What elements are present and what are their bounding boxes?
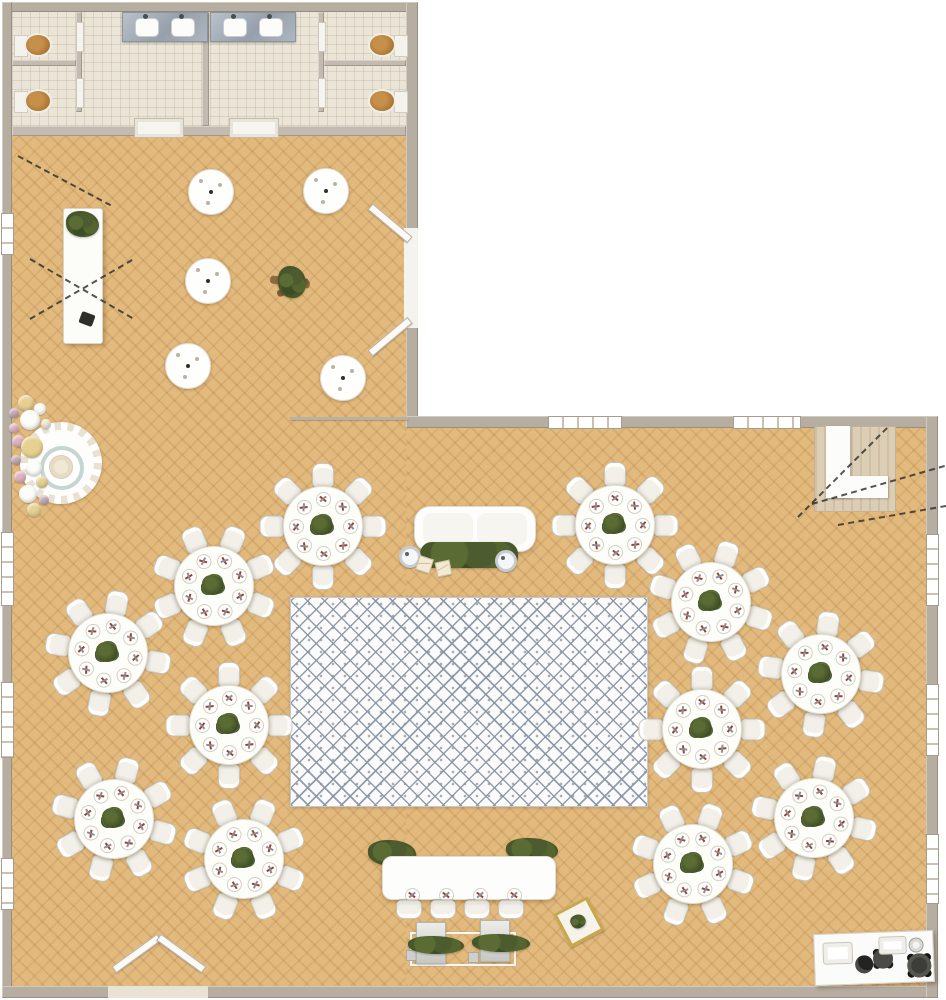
toilet[interactable] [26,91,50,111]
table-decor [203,290,207,294]
table-decor [199,179,203,183]
chair [166,714,191,736]
restroom-door[interactable] [229,118,279,138]
balloon [20,410,40,430]
window[interactable] [1,532,14,606]
place-setting [608,491,623,506]
balloon [14,471,26,483]
wall-top [2,2,418,12]
table-decor [215,272,219,276]
window[interactable] [926,834,939,904]
chair [801,711,826,739]
balloon [36,476,48,488]
chair [86,689,112,717]
place-setting [249,718,264,733]
chair [464,900,490,919]
potted-tree[interactable] [264,258,318,308]
table-decor [186,364,190,368]
pedestal-greenery [408,936,464,954]
chair [430,900,456,919]
chair [498,900,524,919]
chair [312,565,334,590]
toilet-tank [394,35,408,57]
table-decor [338,387,342,391]
dining-table[interactable] [627,798,757,928]
place-setting [695,749,710,764]
cocktail-table[interactable] [188,169,234,215]
pedestal-greenery [472,934,530,952]
faucet-icon [231,14,236,19]
wall-stall-left-mid [12,60,76,66]
faucet-icon [143,14,148,19]
floor-plan-canvas [0,0,946,1000]
window[interactable] [1,858,14,910]
faucet-icon [179,14,184,19]
sign-greenery [568,912,588,931]
chair [396,900,422,919]
chair [691,666,713,691]
grinder-icon [908,937,924,953]
floral-centerpiece [699,591,721,611]
balloon [9,423,19,433]
window[interactable] [1,682,14,758]
table-decor [195,357,199,361]
chair [604,564,626,589]
wall-stall-right-mid [324,60,406,66]
restroom-door[interactable] [134,118,184,138]
speaker-icon [907,953,932,978]
floral-centerpiece [603,514,625,534]
table-decor [206,279,210,283]
place-setting [668,722,683,737]
balloon [11,455,21,465]
place-setting [195,718,210,733]
vanity-counter[interactable] [210,12,296,42]
table-decor [183,375,187,379]
bar-decor-object [78,311,95,327]
cocktail-table[interactable] [185,258,231,304]
sink [259,18,283,37]
equipment-tray [822,942,853,965]
vinyl-disc-icon [855,955,874,974]
vanity-counter[interactable] [122,12,208,42]
table-decor [341,376,345,380]
chair [654,514,679,536]
place-setting [608,545,623,560]
chair [312,463,334,488]
chair [218,764,240,789]
dining-table[interactable] [42,587,172,717]
dining-table[interactable] [178,793,308,923]
card-box [435,560,453,578]
sink [171,18,195,37]
chair [604,462,626,487]
dining-table[interactable] [163,659,293,789]
table-decor [314,178,318,182]
sofa-cushion [423,513,473,545]
table-clamp [468,952,479,963]
floral-centerpiece [102,808,124,828]
dining-table[interactable] [748,752,878,882]
wall-left [2,2,12,998]
chair [639,718,664,740]
faucet-icon [267,14,272,19]
buffet-bar-table[interactable] [63,208,103,344]
toilet[interactable] [370,35,394,55]
place-setting [289,519,304,534]
floral-centerpiece [802,807,824,827]
table-decor [321,200,325,204]
table-decor [206,201,210,205]
balloon [21,436,43,458]
floral-centerpiece [96,642,118,662]
place-setting [343,519,358,534]
window[interactable] [548,416,622,429]
place-setting [316,546,331,561]
wall-wing-right [406,2,418,428]
table-decor [176,353,180,357]
place-setting [635,518,650,533]
stall-door[interactable] [76,22,84,52]
table-decor [196,268,200,272]
floral-centerpiece [232,848,254,868]
dining-table[interactable] [636,663,766,793]
floral-centerpiece [681,853,703,873]
dining-table[interactable] [48,753,178,883]
window[interactable] [733,416,801,429]
chair [218,662,240,687]
double-door-frame [404,228,418,328]
balloon [27,503,41,517]
balloon [41,419,51,429]
window[interactable] [926,684,939,756]
sofa-cushion [477,513,527,545]
greenery-arrangement [66,211,99,237]
stall-door[interactable] [318,22,326,52]
table-decor [350,369,354,373]
restroom-floor [12,12,406,126]
dj-station[interactable] [813,930,935,986]
place-setting [222,691,237,706]
toilet-tank [394,91,408,113]
table-decor [209,190,213,194]
sink [223,18,247,37]
place-setting [316,492,331,507]
table-decor [218,183,222,187]
entrance-threshold [108,986,208,998]
dance-floor[interactable] [290,597,648,807]
drape-rod [290,417,408,420]
wall-restroom-bottom [12,126,406,136]
floral-centerpiece [217,714,239,734]
chair [552,514,577,536]
chair [741,718,766,740]
floral-centerpiece [690,718,712,738]
chair [268,714,293,736]
balloon [39,495,49,505]
equipment-tray [878,936,907,955]
floral-centerpiece [202,575,224,595]
place-setting [722,722,737,737]
stall-door[interactable] [318,78,326,108]
place-setting [581,518,596,533]
cocktail-table[interactable] [303,168,349,214]
place-setting [695,695,710,710]
floral-centerpiece [809,663,831,683]
balloon [9,408,19,418]
window[interactable] [1,213,14,255]
table-decor [331,365,335,369]
balloon [26,460,42,476]
cake [49,455,73,479]
balloon [18,395,34,411]
balloon [19,485,37,503]
chair [691,768,713,793]
floral-centerpiece [311,515,333,535]
chair [362,515,387,537]
table-decor [324,189,328,193]
sink [135,18,159,37]
side-stool[interactable] [495,550,517,572]
cocktail-table[interactable] [320,355,366,401]
dining-table[interactable] [755,608,885,738]
place-setting [222,745,237,760]
window[interactable] [926,534,939,606]
tree-foliage [278,266,306,298]
chair [858,668,886,693]
stall-door[interactable] [76,78,84,108]
cocktail-table[interactable] [165,343,211,389]
toilet[interactable] [370,91,394,111]
toilet[interactable] [26,35,50,55]
table-decor [333,182,337,186]
